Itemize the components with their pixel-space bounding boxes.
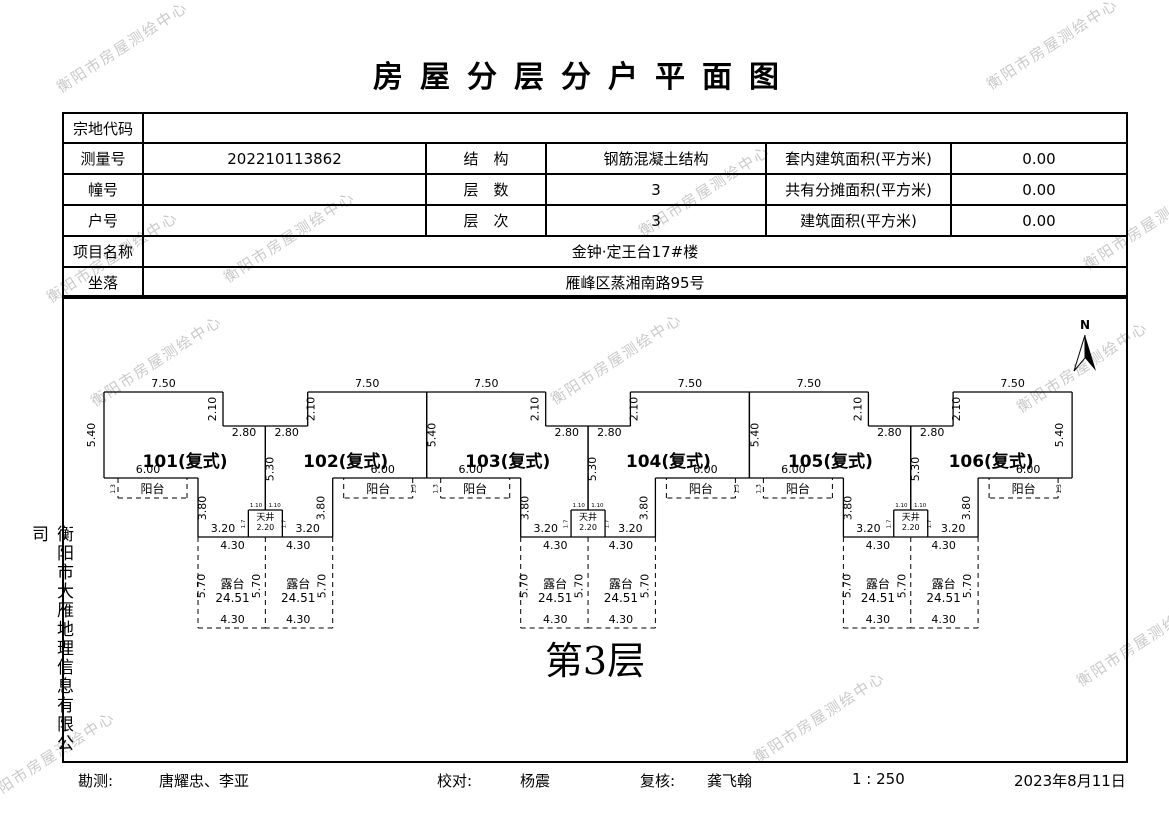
dimension-label: 5.70 [250,574,263,599]
dimension-label: 3.80 [841,496,854,521]
dimension-label: 5.70 [573,574,586,599]
map-scale: 1 : 250 [852,770,905,788]
reviewer-label: 复核: [640,770,675,791]
dimension-label: 4.30 [931,539,956,552]
dimension-label: 4.30 [220,613,245,626]
parcel-value [143,113,1127,143]
dimension-label: 5.70 [895,574,908,599]
dimension-label: 7.50 [678,377,703,390]
dimension-label: 2.20 [579,523,597,532]
dimension-label: 2.20 [256,523,274,532]
dimension-label: 2.80 [554,426,579,439]
structure-label: 结 构 [426,143,546,174]
dimension-label: 5.70 [961,574,974,599]
dimension-label: 3.20 [856,522,881,535]
terrace-area-value: 24.51 [215,591,249,605]
dimension-label: 1.3 [110,484,117,494]
reviewer-name: 龚飞翰 [707,770,752,791]
north-label: N [1080,318,1090,332]
dimension-label: 6.00 [781,463,806,476]
terrace-label: 露台 [932,576,956,591]
dimension-label: 2.10 [206,397,219,422]
dimension-label: 5.40 [85,423,98,448]
dimension-label: 7.50 [474,377,499,390]
location-value: 雁峰区蒸湘南路95号 [143,267,1127,298]
floors-value: 3 [546,174,766,205]
info-table: 宗地代码 测量号 202210113862 结 构 钢筋混凝土结构 套内建筑面积… [62,112,1128,297]
shared-area-value: 0.00 [951,174,1127,205]
survey-label: 测量号 [63,143,143,174]
lightwell-label: 天井 [256,511,274,523]
signature-footer: 勘测: 唐耀忠、李亚 校对: 杨震 复核: 龚飞翰 1 : 250 2023年8… [62,766,1128,794]
dimension-label: 1.7 [282,519,288,528]
balcony-label: 阳台 [1012,481,1036,496]
dimension-label: 1.3 [1056,484,1063,494]
dimension-label: 6.00 [370,463,395,476]
floor-label: 第3层 [545,639,645,683]
dimension-label: 1.10 [269,503,282,509]
dimension-label: 5.70 [518,574,531,599]
lightwell-label: 天井 [902,511,920,523]
project-value: 金钟·定王台17#楼 [143,236,1127,267]
checker-label: 校对: [437,770,472,791]
dimension-label: 5.40 [748,423,761,448]
terrace-label: 露台 [609,576,633,591]
inner-area-value: 0.00 [951,143,1127,174]
dimension-label: 2.80 [274,426,299,439]
dimension-label: 3.20 [211,522,236,535]
terrace-area-value: 24.51 [926,591,960,605]
level-label: 层 次 [426,205,546,236]
dimension-label: 4.30 [286,539,311,552]
balcony-label: 阳台 [366,481,390,496]
dimension-label: 5.70 [638,574,651,599]
dimension-label: 3.80 [315,496,328,521]
dimension-label: 2.10 [529,397,542,422]
unit-value [143,205,426,236]
dimension-label: 3.80 [196,496,209,521]
dimension-label: 1.7 [886,519,892,528]
floor-plan-area: 7.502.102.80101(复式)6.00阳台1.33.803.201.10… [62,295,1128,763]
surveyor-label: 勘测: [78,770,113,791]
dimension-label: 1.10 [591,503,604,509]
dimension-label: 6.00 [458,463,483,476]
dimension-label: 7.50 [355,377,380,390]
dimension-label: 3.80 [519,496,532,521]
dimension-label: 4.30 [866,539,891,552]
unit-module: 7.502.102.80101(复式)6.00阳台1.33.803.201.10… [85,377,427,628]
dimension-label: 1.7 [927,519,933,528]
dimension-label: 7.50 [797,377,822,390]
surveyor-names: 唐耀忠、李亚 [159,770,249,791]
checker-name: 杨震 [520,770,550,791]
dimension-label: 5.40 [1053,423,1066,448]
dimension-label: 1.10 [914,503,927,509]
dimension-label: 4.30 [931,613,956,626]
terrace-area-value: 24.51 [538,591,572,605]
dimension-label: 6.00 [136,463,161,476]
dimension-label: 5.70 [195,574,208,599]
dimension-label: 6.00 [1016,463,1041,476]
dimension-label: 4.30 [286,613,311,626]
terrace-area-value: 24.51 [281,591,315,605]
dimension-label: 2.80 [232,426,257,439]
location-label: 坐落 [63,267,143,298]
dimension-label: 5.70 [840,574,853,599]
dimension-label: 1.3 [755,484,762,494]
building-value [143,174,426,205]
dimension-label: 2.80 [597,426,622,439]
dimension-label: 5.40 [426,423,439,448]
dimension-label: 1.3 [433,484,440,494]
document-sheet: 衡阳市房屋测绘中心衡阳市房屋测绘中心衡阳市房屋测绘中心衡阳市房屋测绘中心衡阳市房… [0,0,1169,827]
level-value: 3 [546,205,766,236]
survey-value: 202210113862 [143,143,426,174]
dimension-label: 4.30 [220,539,245,552]
dimension-label: 4.30 [866,613,891,626]
dimension-label: 4.30 [543,613,568,626]
terrace-label: 露台 [543,576,567,591]
dimension-label: 7.50 [151,377,176,390]
dimension-label: 4.30 [609,539,634,552]
dimension-label: 2.20 [902,523,920,532]
dimension-label: 6.00 [693,463,718,476]
terrace-area-value: 24.51 [604,591,638,605]
floor-area-value: 0.00 [951,205,1127,236]
dimension-label: 7.50 [1000,377,1025,390]
terrace-label: 露台 [286,576,310,591]
dimension-label: 2.10 [950,397,963,422]
dimension-label: 1.7 [564,519,570,528]
dimension-label: 3.20 [533,522,558,535]
unit-module: 7.502.102.80103(复式)6.00阳台1.33.803.201.10… [426,377,750,628]
dimension-label: 2.10 [305,397,318,422]
floors-label: 层 数 [426,174,546,205]
unit-label: 户号 [63,205,143,236]
dimension-label: 1.3 [733,484,740,494]
dimension-label: 2.10 [851,397,864,422]
dimension-label: 4.30 [609,613,634,626]
dimension-label: 3.20 [295,522,320,535]
dimension-label: 2.10 [627,397,640,422]
unit-module: 7.502.102.80105(复式)6.00阳台1.33.803.201.10… [748,377,1072,628]
terrace-label: 露台 [866,576,890,591]
dimension-label: 1.10 [250,503,263,509]
structure-value: 钢筋混凝土结构 [546,143,766,174]
shared-area-label: 共有分摊面积(平方米) [766,174,951,205]
document-date: 2023年8月11日 [1014,770,1126,791]
page-title: 房屋分层分户平面图 [0,52,1169,96]
dimension-label: 1.7 [241,519,247,528]
parcel-label: 宗地代码 [63,113,143,143]
building-label: 幢号 [63,174,143,205]
dimension-label: 3.80 [960,496,973,521]
dimension-label: 1.3 [411,484,418,494]
company-name-vertical: 衡阳市大雁地理信息有限公司 [26,525,76,770]
lightwell-label: 天井 [579,511,597,523]
dimension-label: 1.10 [573,503,586,509]
dimension-label: 1.7 [604,519,610,528]
inner-area-label: 套内建筑面积(平方米) [766,143,951,174]
dimension-label: 1.10 [895,503,908,509]
dimension-label: 3.80 [637,496,650,521]
balcony-label: 阳台 [689,481,713,496]
floor-plan-svg: 7.502.102.80101(复式)6.00阳台1.33.803.201.10… [64,297,1126,761]
dimension-label: 3.20 [618,522,643,535]
terrace-area-value: 24.51 [861,591,895,605]
balcony-label: 阳台 [463,481,487,496]
dimension-label: 2.80 [877,426,902,439]
project-label: 项目名称 [63,236,143,267]
floor-area-label: 建筑面积(平方米) [766,205,951,236]
north-arrow [1074,335,1085,371]
dimension-label: 4.30 [543,539,568,552]
north-arrow [1085,335,1096,371]
balcony-label: 阳台 [786,481,810,496]
terrace-label: 露台 [220,576,244,591]
dimension-label: 3.20 [941,522,966,535]
balcony-label: 阳台 [140,481,164,496]
dimension-label: 5.70 [316,574,329,599]
dimension-label: 2.80 [920,426,945,439]
